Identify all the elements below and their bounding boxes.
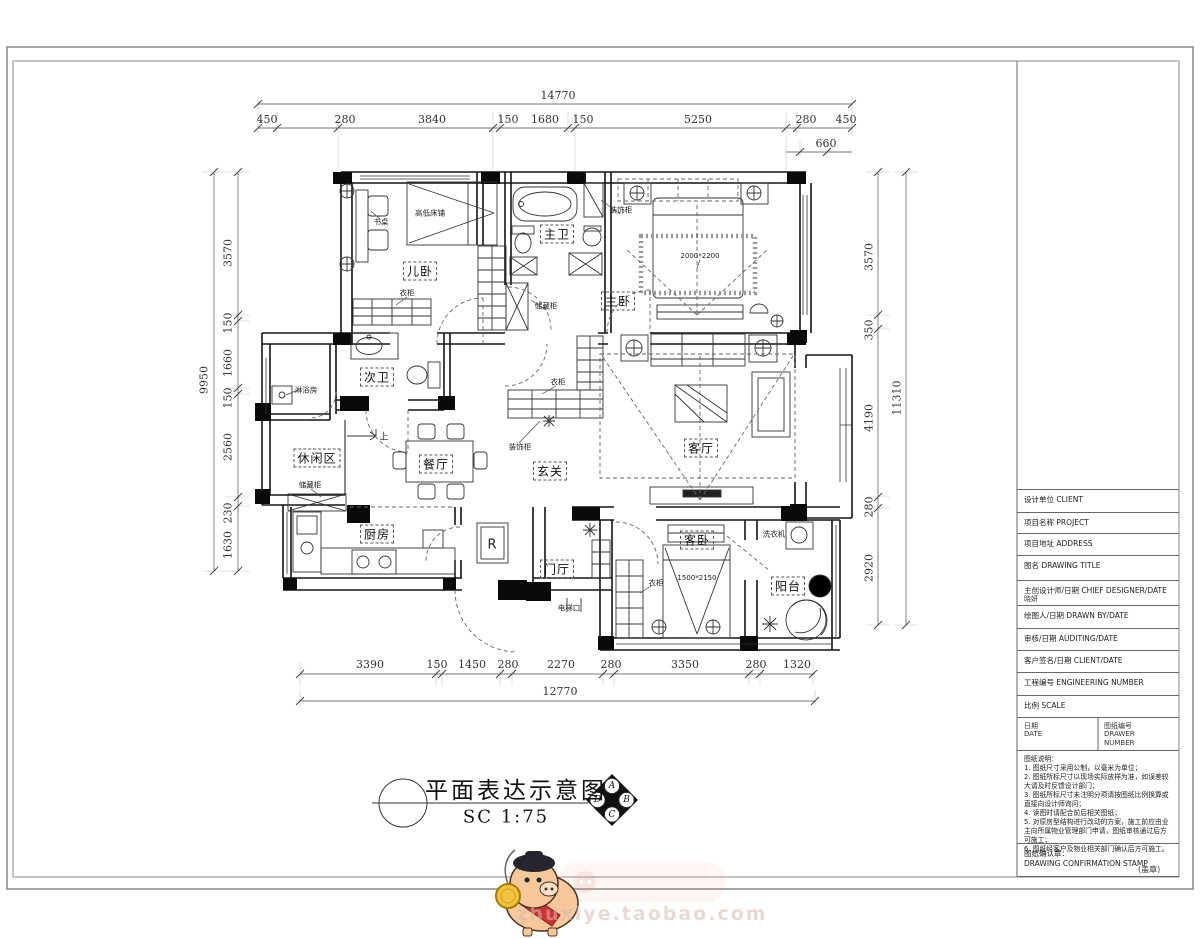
- dim-label: 150: [427, 658, 448, 671]
- dim-label: 1680: [531, 113, 559, 126]
- note-item: 3. 图纸所标尺寸未注明分项请按图纸比例换算或直接向设计师询问；: [1024, 791, 1173, 809]
- dim-label: 150: [498, 113, 519, 126]
- annotation-storage-2: 储藏柜: [299, 480, 322, 491]
- dim-label: 4190: [863, 404, 876, 432]
- room-label-master-bedroom: 主卧: [601, 292, 635, 311]
- dim-label: 150: [222, 388, 235, 409]
- dim-label: 150: [573, 113, 594, 126]
- room-label-kitchen: 厨房: [360, 525, 394, 544]
- annotation-shower-room: 淋浴房: [295, 385, 318, 396]
- titleblock-row-clientsign: 客户签名/日期 CLIENT/DATE: [1017, 650, 1179, 672]
- compass-letter-b: B: [623, 795, 630, 805]
- annotation-bed-size-guest: 1500*2150: [677, 574, 716, 582]
- titleblock-notes: 图纸说明： 1. 图纸尺寸采用公制，以毫米为单位； 2. 图纸所标尺寸以现场实际…: [1017, 750, 1179, 843]
- drawing-caption-scale: SC 1:75: [463, 807, 549, 828]
- compass-letter-d: D: [594, 795, 601, 805]
- dim-left-total: 9950: [198, 366, 211, 394]
- dim-label: 2920: [863, 554, 876, 582]
- drawing-sheet: 儿卧 主卫 主卧 次卫 休闲区 餐厅 玄关 客厅 厨房 门厅 客卧 阳台 高低床…: [0, 0, 1200, 938]
- titleblock-row-title: 图名 DRAWING TITLE: [1017, 555, 1179, 580]
- annotation-wardrobe-1: 衣柜: [400, 288, 415, 299]
- dim-label: 350: [863, 320, 876, 341]
- titleblock-row-engnumber: 工程编号 ENGINEERING NUMBER: [1017, 672, 1179, 695]
- annotation-deco-cabinet-1: 装饰柜: [610, 205, 633, 216]
- note-item: 4. 读图时请配合前后相关图纸；: [1024, 809, 1173, 818]
- dim-label: 3570: [863, 243, 876, 271]
- room-label-living-room: 客厅: [684, 439, 718, 458]
- dimension-ticks: [210, 100, 910, 705]
- stamp-seal: (盖章): [1138, 864, 1160, 875]
- annotation-washer: 洗衣机: [763, 529, 786, 540]
- dim-label: 2270: [547, 658, 575, 671]
- room-label-kids-bedroom: 儿卧: [403, 262, 437, 281]
- annotation-deco-cabinet-2: 装饰柜: [509, 442, 532, 453]
- dim-label: 280: [601, 658, 622, 671]
- room-label-guest-bedroom: 客卧: [680, 531, 714, 550]
- dim-label: 280: [863, 497, 876, 518]
- annotation-up-marker: 上: [379, 430, 388, 443]
- dim-label: 450: [257, 113, 278, 126]
- stamp-label-cn: 图纸确认章：: [1024, 848, 1179, 859]
- room-label-balcony: 阳台: [771, 577, 805, 596]
- dim-label: 3570: [222, 239, 235, 267]
- dim-label: 3840: [418, 113, 446, 126]
- dim-top-total: 14770: [541, 89, 576, 102]
- watermark-url: zhuxiye.taobao.com: [516, 903, 767, 925]
- dim-top-sub: 660: [816, 137, 837, 150]
- dim-label: 2560: [222, 433, 235, 461]
- dim-label: 3350: [671, 658, 699, 671]
- compass-letter-a: A: [609, 781, 616, 791]
- titleblock-row-address: 项目地址 ADDRESS: [1017, 533, 1179, 555]
- room-label-dining-room: 餐厅: [419, 455, 453, 474]
- dim-label: 5250: [684, 113, 712, 126]
- dim-label: 1630: [222, 531, 235, 559]
- note-item: 1. 图纸尺寸采用公制，以毫米为单位；: [1024, 764, 1173, 773]
- dim-label: 1450: [458, 658, 486, 671]
- annotation-wardrobe-2: 衣柜: [551, 377, 566, 388]
- dim-label: 1660: [222, 349, 235, 377]
- annotation-bunk-bed: 高低床铺: [415, 208, 445, 219]
- room-label-second-bath: 次卫: [360, 368, 394, 387]
- annotation-fridge: R: [487, 538, 496, 553]
- dim-label: 1320: [783, 658, 811, 671]
- titleblock-number-en1: DRAWER: [1104, 730, 1135, 738]
- titleblock-row-designer: 主创设计师/日期 CHIEF DESIGNER/DATE: [1017, 580, 1179, 605]
- notes-title: 图纸说明：: [1024, 755, 1173, 764]
- note-item: 2. 图纸所标尺寸以现场实际放样为准，如误差较大请及时反馈设计部门；: [1024, 773, 1173, 791]
- dim-label: 3390: [356, 658, 384, 671]
- dim-label: 280: [746, 658, 767, 671]
- annotation-desk: 书桌: [374, 217, 389, 228]
- titleblock-row-client: 设计单位 CLIENT: [1017, 489, 1179, 512]
- titleblock-date-en: DATE: [1024, 730, 1042, 738]
- annotation-elevator: 电梯口: [558, 603, 581, 614]
- dim-label: 230: [222, 503, 235, 524]
- dim-label: 150: [222, 313, 235, 334]
- room-label-entry-hall: 门厅: [540, 560, 574, 579]
- titleblock-row-project: 项目名称 PROJECT: [1017, 512, 1179, 533]
- dim-label: 280: [335, 113, 356, 126]
- room-label-master-bath: 主卫: [540, 225, 574, 244]
- room-label-leisure-area: 休闲区: [293, 449, 340, 468]
- titleblock-row-auditing: 审核/日期 AUDITING/DATE: [1017, 628, 1179, 650]
- dim-right-total: 11310: [891, 381, 904, 416]
- compass-letter-c: C: [609, 810, 616, 820]
- titleblock-number-en2: NUMBER: [1104, 739, 1135, 747]
- titleblock-designer-name: 晓妍: [1024, 594, 1038, 604]
- drawing-caption-title: 平面表达示意图: [425, 771, 607, 805]
- dim-label: 280: [796, 113, 817, 126]
- room-label-foyer: 玄关: [533, 462, 567, 481]
- annotation-storage-1: 储藏柜: [535, 301, 558, 312]
- titleblock-row-scale: 比例 SCALE: [1017, 695, 1179, 717]
- dim-label: 280: [498, 658, 519, 671]
- annotation-wardrobe-3: 衣柜: [649, 578, 664, 589]
- dim-label: 450: [836, 113, 857, 126]
- dim-bottom-total: 12770: [543, 685, 578, 698]
- sheet-frame: [7, 47, 1193, 889]
- annotation-bed-size-master: 2000*2200: [680, 252, 719, 260]
- note-item: 5. 对原房型结构进行改动的方案，施工前应由业主向所属物业管理部门申请，图纸审核…: [1024, 818, 1173, 845]
- titleblock-row-drawnby: 绘图人/日期 DRAWN BY/DATE: [1017, 605, 1179, 628]
